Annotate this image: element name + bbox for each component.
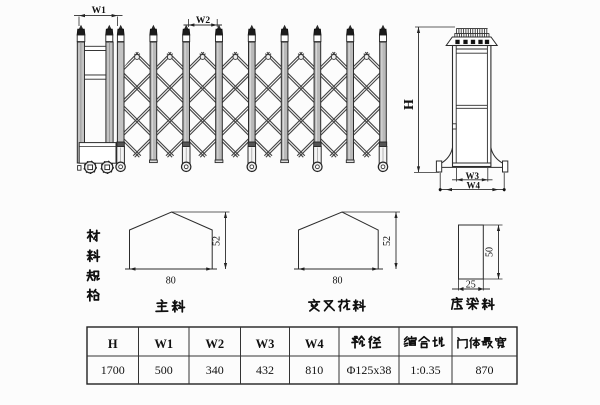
svg-text:52: 52 xyxy=(212,236,223,246)
svg-text:W4: W4 xyxy=(305,337,325,351)
svg-text:52: 52 xyxy=(382,236,393,246)
svg-text:80: 80 xyxy=(333,276,343,287)
svg-text:870: 870 xyxy=(476,363,494,377)
svg-text:340: 340 xyxy=(206,363,224,377)
svg-text:W1: W1 xyxy=(92,6,107,16)
svg-text:W4: W4 xyxy=(467,181,481,191)
svg-text:432: 432 xyxy=(256,363,274,377)
svg-text:W2: W2 xyxy=(196,16,211,26)
svg-text:1:0.35: 1:0.35 xyxy=(410,363,440,377)
svg-text:W2: W2 xyxy=(205,337,224,351)
svg-text:1700: 1700 xyxy=(101,363,125,377)
svg-text:80: 80 xyxy=(166,276,176,287)
svg-text:50: 50 xyxy=(485,247,496,257)
svg-text:W3: W3 xyxy=(466,171,480,181)
svg-text:W3: W3 xyxy=(256,337,275,351)
svg-text:810: 810 xyxy=(305,363,323,377)
svg-text:25: 25 xyxy=(466,279,476,290)
svg-text:H: H xyxy=(402,99,417,110)
svg-text:Φ125x38: Φ125x38 xyxy=(347,363,392,377)
svg-text:W1: W1 xyxy=(154,337,173,351)
svg-text:H: H xyxy=(108,337,118,351)
svg-text:500: 500 xyxy=(155,363,173,377)
